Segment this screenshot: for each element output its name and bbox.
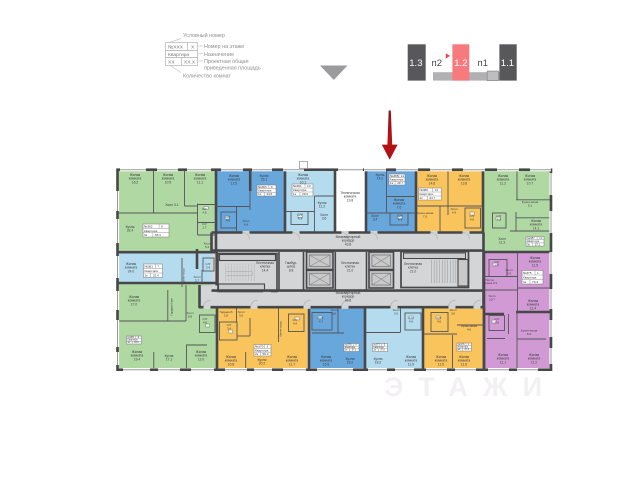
svg-text:29.7: 29.7 <box>397 181 403 185</box>
svg-text:1: 1 <box>537 271 539 275</box>
svg-text:№377: №377 <box>374 343 381 346</box>
svg-text:Проектная общая: Проектная общая <box>204 59 249 65</box>
svg-text:Количество комнат: Количество комнат <box>183 74 231 80</box>
svg-text:Кухня-ниша: Кухня-ниша <box>182 268 186 284</box>
svg-text:С/У3.4: С/У3.4 <box>227 323 232 330</box>
svg-text:п1: п1 <box>478 58 489 69</box>
svg-text:81.6: 81.6 <box>134 342 139 344</box>
svg-text:29.6: 29.6 <box>302 192 308 196</box>
svg-text:83.4: 83.4 <box>155 233 161 237</box>
svg-text:37.2: 37.2 <box>352 350 357 352</box>
svg-text:Холл11.3: Холл11.3 <box>498 237 506 245</box>
svg-text:С/У4.6: С/У4.6 <box>202 207 207 214</box>
svg-text:XX: XX <box>168 60 175 66</box>
svg-text:С/У5.6: С/У5.6 <box>495 317 500 324</box>
svg-text:37.5: 37.5 <box>380 350 385 352</box>
svg-text:С/У4.6: С/У4.6 <box>409 316 414 323</box>
svg-text:С/У4.6: С/У4.6 <box>226 215 231 222</box>
svg-text:13: 13 <box>539 236 543 240</box>
svg-text:С/У4.6: С/У4.6 <box>470 214 475 221</box>
svg-text:п2: п2 <box>432 58 443 69</box>
svg-text:7: 7 <box>157 265 159 269</box>
svg-text:59.0: 59.0 <box>262 352 268 356</box>
svg-text:37.5: 37.5 <box>465 349 470 351</box>
svg-text:Номер на этаже: Номер на этаже <box>204 44 244 50</box>
svg-text:№XXX: №XXX <box>168 45 184 51</box>
svg-text:№380: №380 <box>128 336 135 339</box>
svg-text:№381: №381 <box>145 265 154 269</box>
svg-text:Квартира: Квартира <box>168 52 189 58</box>
svg-text:Кухня-ниша: Кухня-ниша <box>279 321 283 337</box>
svg-text:Условный номер: Условный номер <box>183 32 225 39</box>
svg-text:10: 10 <box>307 184 311 188</box>
svg-text:1.2: 1.2 <box>454 58 467 69</box>
svg-text:44.7: 44.7 <box>429 196 435 200</box>
svg-text:ЭТАЖИ: ЭТАЖИ <box>384 372 548 402</box>
svg-text:С/У3.4: С/У3.4 <box>206 262 211 269</box>
svg-text:№378: №378 <box>345 343 352 346</box>
svg-text:1.1: 1.1 <box>501 58 514 69</box>
svg-text:С/У4.7: С/У4.7 <box>495 260 500 267</box>
svg-text:44.6: 44.6 <box>266 192 272 196</box>
svg-text:приведенная площадь: приведенная площадь <box>204 66 261 72</box>
svg-text:Назначение: Назначение <box>204 52 234 58</box>
svg-text:С/У4.6: С/У4.6 <box>203 317 208 324</box>
svg-text:№376: №376 <box>458 343 465 346</box>
svg-text:Холл10.7: Холл10.7 <box>488 294 495 301</box>
svg-text:Квартира: Квартира <box>145 269 159 273</box>
svg-text:Холл 3.1: Холл 3.1 <box>165 203 178 207</box>
svg-text:С/У4.4: С/У4.4 <box>293 318 298 325</box>
svg-text:12: 12 <box>435 188 439 192</box>
svg-text:№375: №375 <box>523 271 532 275</box>
svg-text:33.4: 33.4 <box>153 274 159 278</box>
svg-text:С/У4.5: С/У4.5 <box>497 214 502 221</box>
svg-text:С/У4.7: С/У4.7 <box>319 316 324 323</box>
svg-text:Квартира: Квартира <box>523 276 537 280</box>
svg-text:С/У1.7: С/У1.7 <box>202 222 207 229</box>
svg-text:XX.X: XX.X <box>184 60 196 66</box>
svg-text:57.1: 57.1 <box>535 242 541 246</box>
svg-text:79.3: 79.3 <box>532 280 538 284</box>
svg-text:Гардеробная: Гардеробная <box>170 298 174 315</box>
svg-text:8: 8 <box>161 225 163 229</box>
svg-text:С/У4.6: С/У4.6 <box>437 316 442 323</box>
svg-text:1.3: 1.3 <box>409 58 422 69</box>
